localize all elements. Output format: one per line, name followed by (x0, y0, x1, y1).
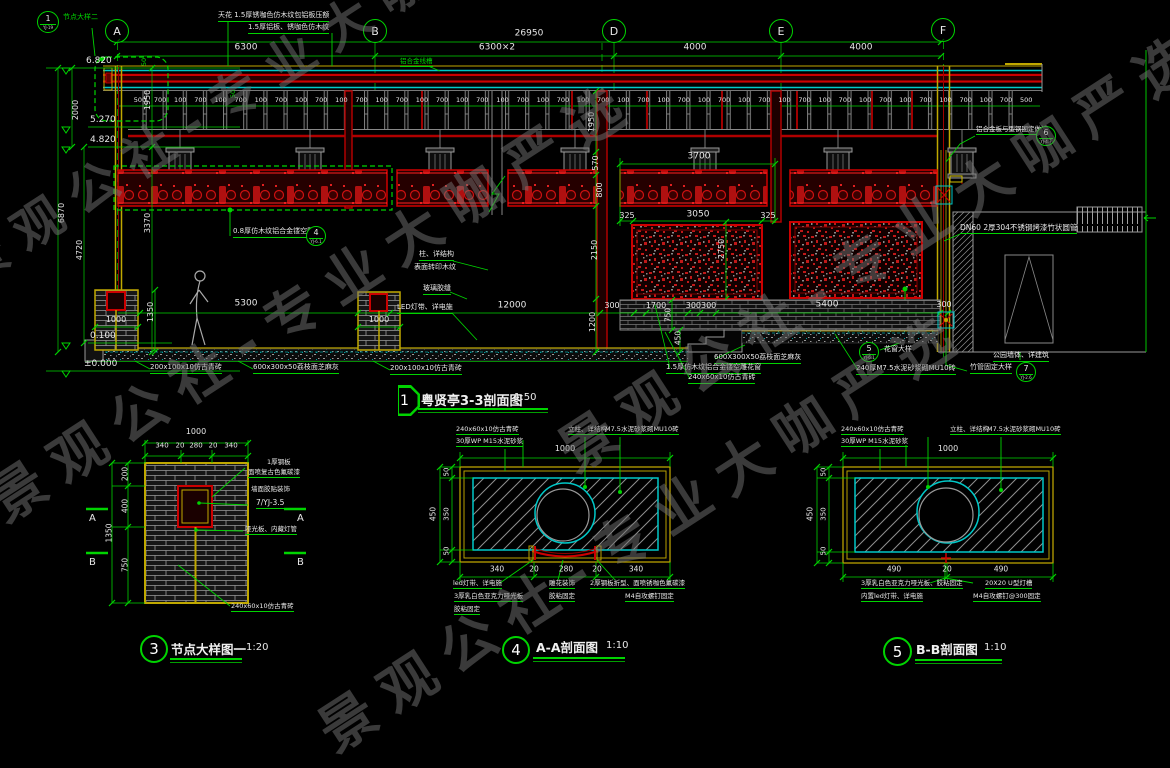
bubble-number: 1 (40, 15, 56, 25)
drawing-title-3-scale: 1:20 (246, 642, 268, 653)
bubble-number: 6 (1039, 129, 1053, 139)
human-figure-icon (190, 271, 208, 345)
drawing-title-3-badge: 3 (140, 635, 168, 663)
main-section-linework (46, 22, 1156, 413)
detail-5-linework (814, 437, 1056, 664)
drawing-title-1-scale: 1:50 (514, 392, 536, 403)
bubble-ref: YJ-6.1 (863, 355, 874, 360)
bubble-ref: YJ-2.6 (1020, 375, 1031, 380)
drawing-title-5: B-B剖面图 (916, 639, 978, 658)
drawing-title-4-badge: 4 (502, 636, 530, 664)
detail-bubble-node2: 1 YJ-19 (37, 11, 59, 33)
drawing-title-5-badge: 5 (883, 637, 912, 666)
detail-4-linework (437, 437, 673, 662)
detail-bubble-pipe: 7 YJ-2.6 (1016, 362, 1036, 382)
grid-bubble-d: D (602, 19, 626, 43)
detail-bubble-frieze: 4 YJ-6.1 (306, 226, 326, 246)
grid-bubble-a: A (105, 19, 129, 43)
bubble-ref: YJ-19 (43, 25, 53, 30)
drawing-title-1: 粤贤亭3-3剖面图 (421, 390, 523, 409)
grid-bubble-f: F (931, 18, 955, 42)
bubble-ref: YJ-6.1 (310, 239, 321, 244)
cad-canvas: 景观公社-专业大咖严选景观公社-专业大咖严选景观公社-专业大咖严选景观公社-专业… (0, 0, 1170, 681)
drawing-title-4-scale: 1:10 (606, 640, 628, 651)
bubble-number: 4 (309, 229, 323, 239)
drawing-title-4: A-A剖面图 (536, 637, 598, 656)
bubble-ref: YJ-4.7 (1040, 139, 1051, 144)
bubble-number: 5 (862, 345, 876, 355)
drawing-title-5-scale: 1:10 (984, 642, 1006, 653)
bubble-number: 7 (1019, 365, 1033, 375)
grid-bubble-b: B (363, 19, 387, 43)
cad-linework (0, 0, 1170, 681)
drawing-title-3: 节点大样图一 (171, 639, 246, 658)
detail-bubble-plate: 6 YJ-4.7 (1036, 126, 1056, 146)
detail-3-linework (86, 440, 306, 663)
detail-bubble-window: 5 YJ-6.1 (859, 342, 879, 362)
grid-bubble-e: E (769, 19, 793, 43)
